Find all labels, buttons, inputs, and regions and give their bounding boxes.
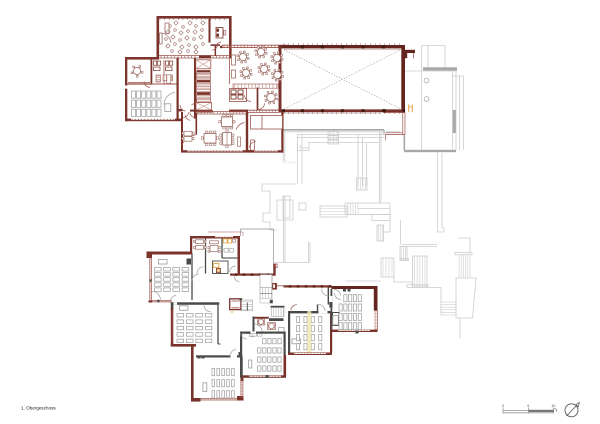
svg-text:10: 10 <box>551 404 555 408</box>
svg-text:0: 0 <box>502 404 504 408</box>
svg-text:5: 5 <box>527 404 529 408</box>
svg-text:1. Obergeschoss: 1. Obergeschoss <box>21 406 56 411</box>
